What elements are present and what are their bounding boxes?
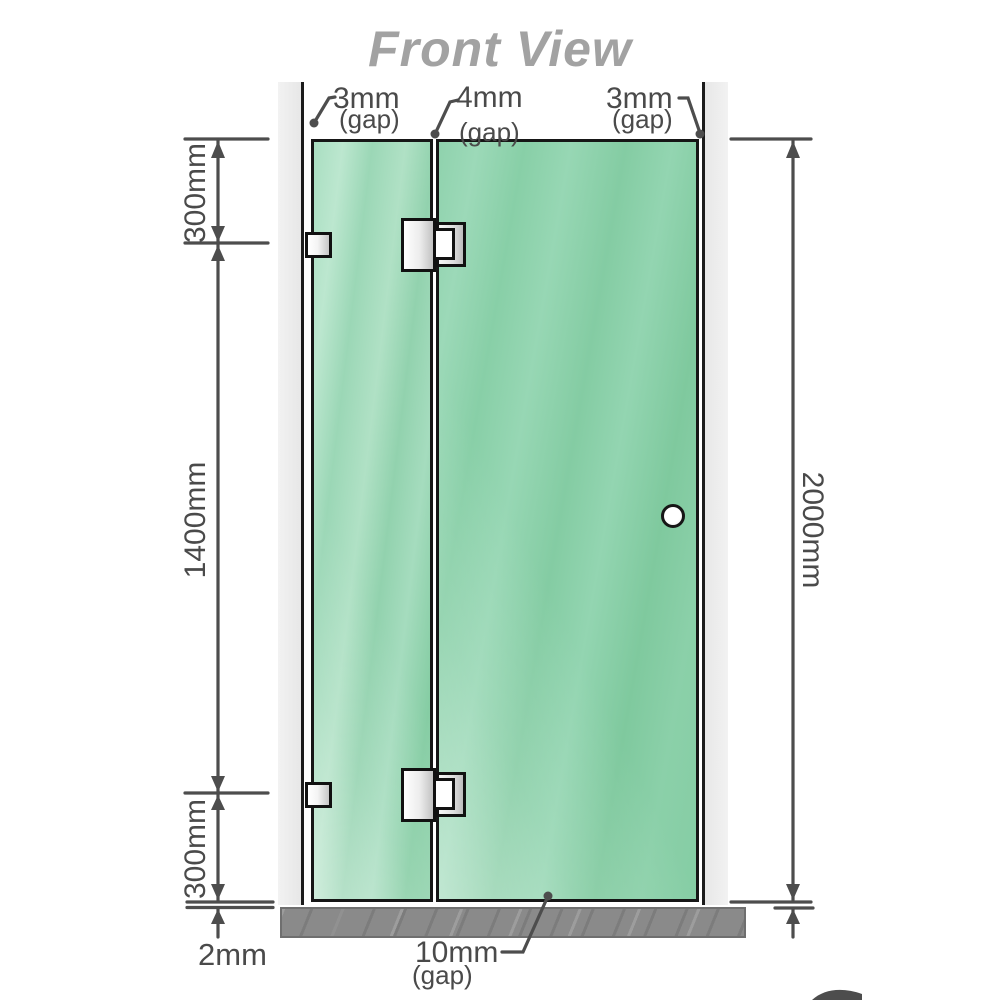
gap-label-top-middle-value: 4mm <box>456 81 523 115</box>
diagram-canvas: Front View <box>0 0 1000 1000</box>
gap-label-top-left-suffix: (gap) <box>339 104 400 135</box>
dimension-label-2000mm: 2000mm <box>795 460 829 600</box>
brand-logo-fragment <box>812 990 862 1000</box>
dimension-label-300mm-top: 300mm <box>179 133 213 253</box>
dimension-label-2mm: 2mm <box>198 937 267 973</box>
dimension-label-300mm-bottom: 300mm <box>179 789 213 909</box>
dimension-lines <box>0 0 1000 1000</box>
gap-label-top-right-suffix: (gap) <box>612 104 673 135</box>
gap-label-top-middle-suffix: (gap) <box>459 117 520 148</box>
leader-lines <box>310 97 705 952</box>
gap-label-bottom-suffix: (gap) <box>412 960 473 991</box>
dimension-label-1400mm: 1400mm <box>179 450 213 590</box>
